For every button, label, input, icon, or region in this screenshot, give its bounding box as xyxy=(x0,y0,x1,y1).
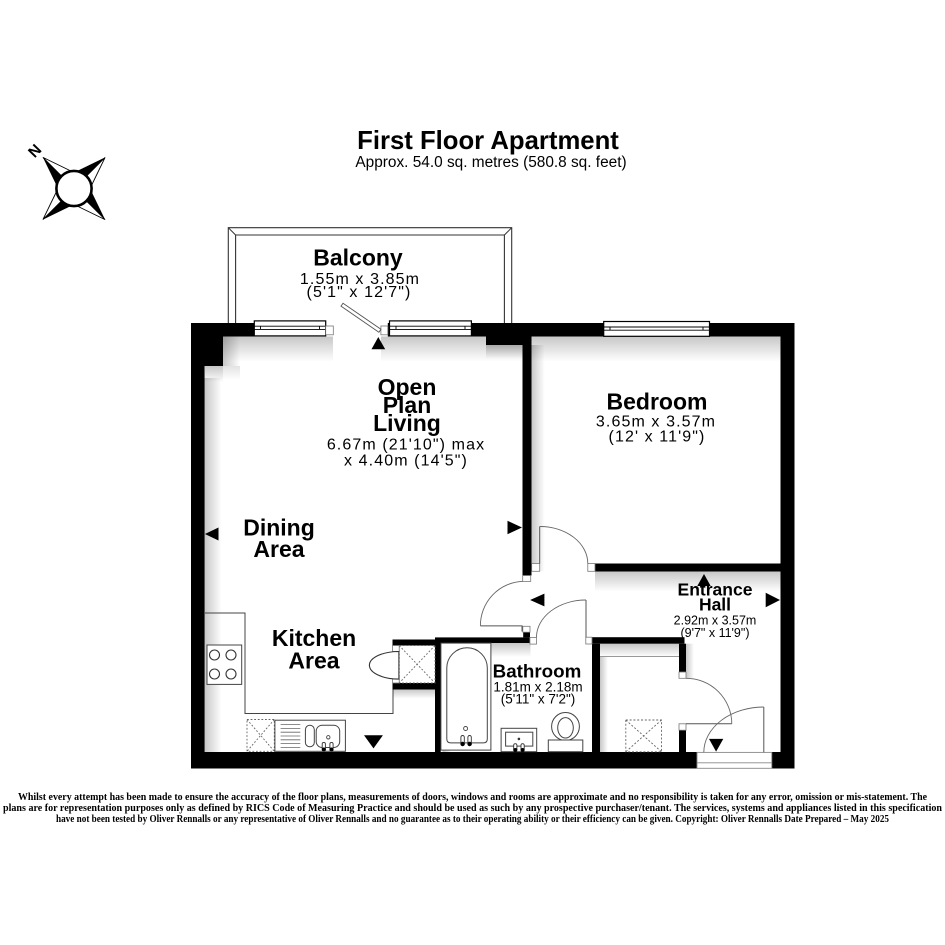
svg-text:Area: Area xyxy=(253,536,304,562)
svg-text:First Floor Apartment: First Floor Apartment xyxy=(357,127,619,155)
svg-text:Bathroom: Bathroom xyxy=(493,661,582,682)
svg-text:6.67m (21'10") max: 6.67m (21'10") max xyxy=(327,437,485,454)
svg-text:Bedroom: Bedroom xyxy=(607,389,708,415)
svg-text:(12' x 11'9"): (12' x 11'9") xyxy=(609,429,706,446)
svg-text:Approx. 54.0 sq. metres (580.8: Approx. 54.0 sq. metres (580.8 sq. feet) xyxy=(355,154,626,171)
svg-text:plans are for representation p: plans are for representation purposes on… xyxy=(3,803,942,814)
svg-text:Area: Area xyxy=(288,648,339,674)
svg-text:(9'7" x 11'9"): (9'7" x 11'9") xyxy=(680,626,749,640)
svg-text:Whilst every attempt has been: Whilst every attempt has been made to en… xyxy=(18,792,928,803)
svg-text:Hall: Hall xyxy=(699,595,731,615)
svg-text:Balcony: Balcony xyxy=(313,245,403,271)
svg-text:x 4.40m (14'5"): x 4.40m (14'5") xyxy=(344,453,468,470)
svg-text:have not been tested by Oliver: have not been tested by Oliver Rennalls … xyxy=(56,814,889,825)
svg-text:Living: Living xyxy=(373,410,441,436)
svg-text:(5'1" x 12'7"): (5'1" x 12'7") xyxy=(307,284,412,301)
svg-text:(5'11" x 7'2"): (5'11" x 7'2") xyxy=(501,692,576,707)
